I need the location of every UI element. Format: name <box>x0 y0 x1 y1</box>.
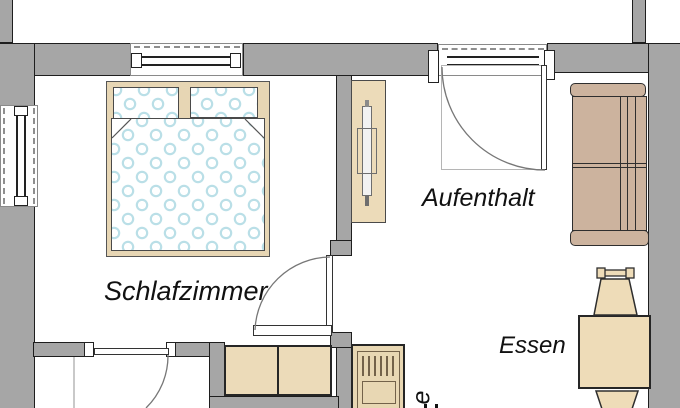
hall-door-jamb-left <box>84 342 94 357</box>
room-label-lounge: Aufenthalt <box>422 184 535 213</box>
window-bed-bracket-right <box>230 53 241 68</box>
kitchen-unit-grill-line <box>374 356 376 376</box>
partial-letter-marks <box>424 404 438 408</box>
tv-stand-mark-bottom <box>365 196 369 206</box>
kitchen-unit-grill-line <box>368 356 370 376</box>
sofa-armrest-top <box>570 83 646 97</box>
window-bed-bracket-left <box>131 53 142 68</box>
kitchen-unit-grill-line <box>386 356 388 376</box>
bedroom-door-jamb-bottom <box>330 332 352 348</box>
wall-bottom-stub-left <box>33 342 86 357</box>
window-left-bracket-bottom <box>14 196 28 206</box>
bed-pillow-right <box>190 87 258 118</box>
wall-left-upper <box>0 43 35 107</box>
sofa-backrest-line-1 <box>620 97 621 230</box>
sofa-backrest-line-3 <box>635 97 636 230</box>
wall-bottom-band <box>209 396 339 408</box>
bed-pillow-left <box>113 87 179 119</box>
hall-door-leaf <box>94 348 169 355</box>
wall-top-right-spur <box>632 0 646 43</box>
window-left-glazing <box>16 112 26 201</box>
room-label-partial-rotated: e <box>407 391 436 405</box>
room-label-dining: Essen <box>499 332 566 360</box>
room-label-bedroom: Schlafzimmer <box>104 276 268 307</box>
bedroom-door-jamb-top <box>330 240 352 256</box>
bed-duvet <box>111 118 265 251</box>
hall-wall-faint-line <box>73 357 75 408</box>
dining-table <box>578 315 651 389</box>
kitchen-unit-grill-line <box>362 356 364 376</box>
window-left-dash-inner <box>33 108 35 204</box>
sofa-backrest-line-2 <box>627 97 628 230</box>
entry-door-leaf <box>541 65 547 170</box>
tv-stand-mark-top <box>365 100 369 107</box>
entry-door-jamb-left <box>428 50 439 83</box>
dining-chair-top <box>594 268 637 315</box>
wall-right <box>648 43 680 408</box>
cabinet-divider <box>277 346 279 395</box>
window-bed-glazing <box>137 56 237 66</box>
entry-door-swing-box <box>441 65 545 170</box>
tv-body <box>357 128 377 174</box>
kitchen-unit-grill-line <box>380 356 382 376</box>
wall-left-lower <box>0 206 35 408</box>
window-left-bracket-top <box>14 106 28 116</box>
wall-top-b <box>243 43 438 76</box>
wall-top-left-spur <box>0 0 13 43</box>
floor-plan: Schlafzimmer Aufenthalt Essen e <box>0 0 680 408</box>
kitchen-unit-grill-line <box>392 356 394 376</box>
entry-door-dash <box>442 48 544 50</box>
bedroom-door-frame <box>326 255 333 333</box>
bedroom-door-leaf <box>253 325 332 336</box>
hall-door-swing-arc <box>146 355 168 408</box>
dining-chair-bottom <box>596 391 638 408</box>
window-left-dash-outer <box>3 108 5 204</box>
sofa-armrest-bottom <box>570 230 649 246</box>
window-bed-dash <box>134 46 240 48</box>
kitchen-unit-basin <box>362 381 396 404</box>
wall-middle-upper <box>336 75 352 249</box>
